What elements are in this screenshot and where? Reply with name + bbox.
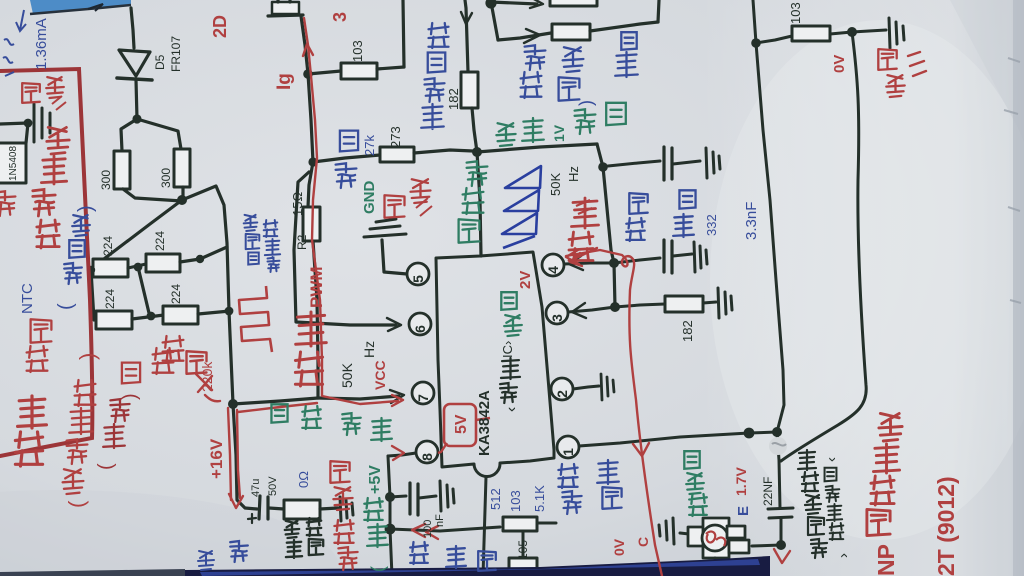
- svg-text:15Ω: 15Ω: [290, 192, 305, 216]
- svg-text:182: 182: [680, 320, 695, 342]
- svg-text:1V: 1V: [551, 124, 567, 142]
- svg-text:50K: 50K: [548, 173, 563, 196]
- svg-text:Hz: Hz: [361, 341, 377, 358]
- svg-text:2D: 2D: [210, 15, 230, 38]
- svg-text:1: 1: [560, 448, 576, 456]
- svg-text:4: 4: [545, 266, 561, 274]
- svg-text:105: 105: [516, 540, 530, 560]
- svg-text:NTC: NTC: [19, 283, 36, 314]
- svg-text:VCC: VCC: [372, 360, 388, 390]
- svg-text:6: 6: [412, 325, 428, 333]
- svg-text:NP: NP: [873, 544, 899, 576]
- svg-text:3: 3: [330, 12, 350, 22]
- svg-text:(: (: [64, 500, 89, 508]
- svg-text:‹: ‹: [503, 407, 520, 412]
- svg-text:FR107: FR107: [169, 36, 183, 72]
- svg-text:0V: 0V: [611, 538, 627, 556]
- svg-text:273: 273: [388, 126, 403, 148]
- svg-text:2: 2: [554, 390, 570, 398]
- svg-text:PWM: PWM: [307, 266, 326, 308]
- svg-text:300: 300: [159, 168, 173, 188]
- svg-text:3.3nF: 3.3nF: [743, 202, 760, 240]
- svg-text:47u: 47u: [250, 479, 262, 497]
- svg-text:100: 100: [422, 520, 434, 538]
- svg-text:2T (9012): 2T (9012): [933, 476, 959, 576]
- svg-text:C: C: [635, 537, 651, 547]
- svg-text:103: 103: [350, 40, 365, 62]
- svg-text:5V: 5V: [453, 414, 470, 434]
- svg-text:D5: D5: [153, 54, 167, 70]
- svg-text:7: 7: [415, 394, 431, 402]
- svg-text:1.36mA: 1.36mA: [33, 18, 50, 70]
- svg-text:+16V: +16V: [207, 438, 226, 479]
- svg-text:GND: GND: [361, 181, 378, 215]
- svg-text:0Ω: 0Ω: [296, 471, 311, 488]
- svg-text:IC›: IC›: [500, 341, 515, 358]
- svg-text:KA3842A: KA3842A: [476, 390, 493, 456]
- svg-text:): ): [75, 353, 100, 360]
- svg-text:5.1K: 5.1K: [532, 485, 547, 512]
- svg-text:224: 224: [103, 289, 117, 309]
- svg-text:1.7V: 1.7V: [733, 467, 749, 496]
- svg-text:(: (: [95, 463, 117, 470]
- svg-text:224: 224: [153, 231, 167, 251]
- svg-text:+5V: +5V: [367, 465, 384, 494]
- svg-text:332: 332: [704, 214, 719, 236]
- svg-text:5: 5: [410, 275, 426, 283]
- svg-text:300: 300: [99, 170, 113, 190]
- svg-text:224: 224: [169, 284, 183, 304]
- svg-text:220k: 220k: [199, 361, 215, 392]
- svg-text:224: 224: [101, 236, 115, 256]
- svg-text:): ): [576, 100, 596, 106]
- svg-text:512: 512: [488, 488, 503, 510]
- svg-text:103: 103: [508, 490, 523, 512]
- svg-text:›: ›: [835, 553, 852, 558]
- svg-text:): ): [119, 393, 141, 400]
- svg-text:50V: 50V: [267, 476, 279, 496]
- svg-text:(: (: [368, 566, 388, 572]
- svg-text:3: 3: [549, 314, 565, 322]
- svg-text:182: 182: [446, 88, 461, 110]
- svg-text:1N5408: 1N5408: [8, 146, 19, 181]
- svg-text:E: E: [735, 506, 752, 516]
- svg-text:R2: R2: [295, 234, 309, 250]
- svg-text:0V: 0V: [831, 55, 848, 73]
- svg-text:nF: nF: [434, 514, 446, 527]
- svg-text:8: 8: [419, 453, 435, 461]
- svg-text:(: (: [55, 303, 77, 310]
- svg-text:50K: 50K: [339, 362, 355, 388]
- svg-text:22NF: 22NF: [761, 477, 775, 506]
- svg-text:Ig: Ig: [274, 73, 295, 90]
- svg-text:2V: 2V: [517, 271, 534, 289]
- svg-text:Hz: Hz: [566, 166, 581, 182]
- svg-text:‹: ‹: [823, 457, 840, 462]
- svg-text:): ): [75, 205, 97, 212]
- svg-text:103: 103: [788, 2, 803, 24]
- svg-text:27k: 27k: [362, 135, 377, 156]
